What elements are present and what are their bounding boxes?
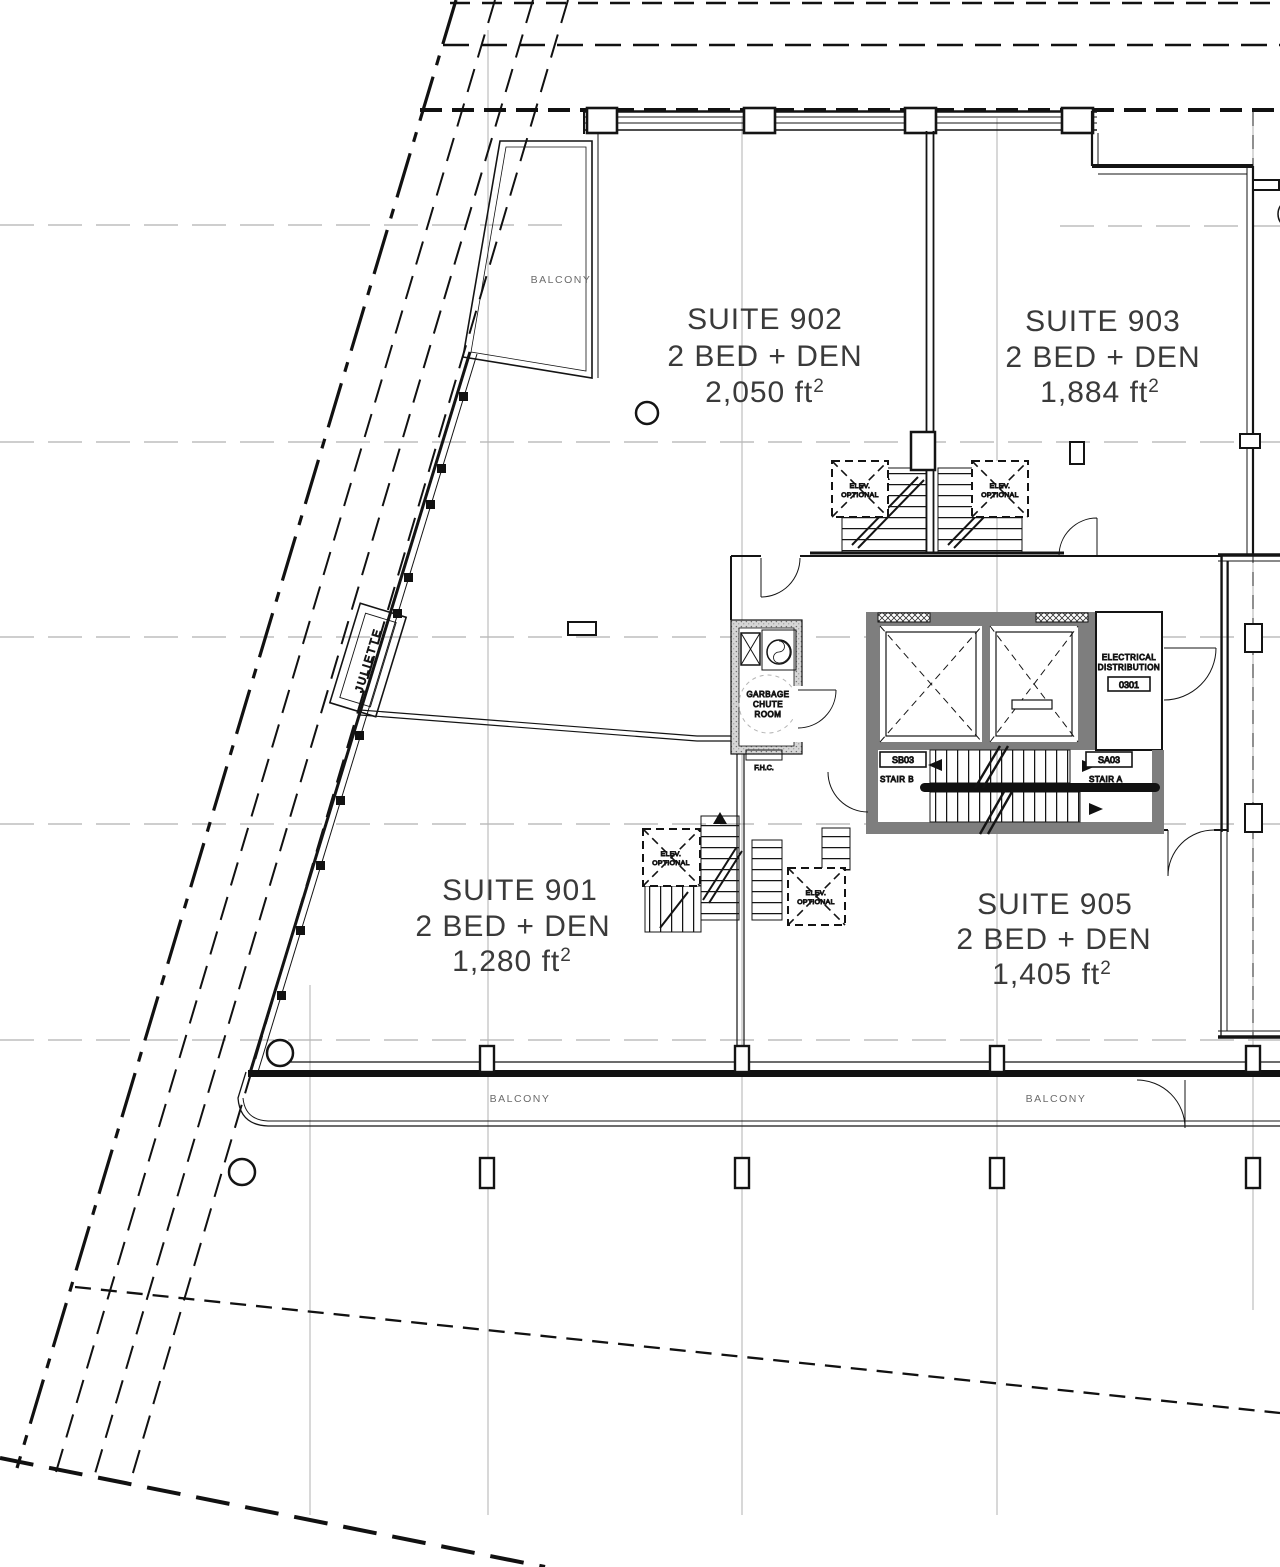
balcony-label-bottom-left: BALCONY — [490, 1093, 551, 1105]
elev-optional-label-3a: ELEV. — [661, 851, 682, 858]
suite-901-title: SUITE 901 — [442, 874, 598, 907]
balcony-post — [990, 1046, 1004, 1072]
suite-903-area: 1,884 ft2 — [1040, 376, 1160, 409]
suite-902-type: 2 BED + DEN — [667, 340, 862, 373]
suite-902-title: SUITE 902 — [687, 303, 843, 336]
elev-optional-4: ELEV. OPTIONAL — [788, 868, 845, 925]
suite-905-title: SUITE 905 — [977, 888, 1133, 921]
grid-column — [1245, 624, 1262, 652]
grid-column — [1245, 804, 1262, 832]
elev-optional-1: ELEV. OPTIONAL — [832, 461, 888, 517]
elevator-door-hatch — [1036, 613, 1088, 622]
suite-903-title: SUITE 903 — [1025, 305, 1181, 338]
suite-901-area: 1,280 ft2 — [452, 945, 572, 978]
suite-903-type: 2 BED + DEN — [1005, 341, 1200, 374]
stair-b-tag: SB03 — [892, 755, 914, 765]
elev-optional-label-2b: OPTIONAL — [981, 492, 1019, 499]
elev-optional-3: ELEV. OPTIONAL — [643, 829, 700, 886]
round-column — [229, 1159, 255, 1185]
balcony-post — [990, 1158, 1004, 1188]
round-column — [636, 402, 658, 424]
garbage-room-label-1: GARBAGE — [746, 690, 789, 699]
fire-hose-cabinet-label: F.H.C. — [754, 765, 774, 772]
balcony-label-top: BALCONY — [531, 274, 592, 286]
balcony-post — [735, 1158, 749, 1188]
electrical-label-2: DISTRIBUTION — [1098, 663, 1160, 672]
electrical-label-1: ELECTRICAL — [1102, 653, 1156, 662]
stair-a-tag: SA03 — [1098, 755, 1120, 765]
balcony-post — [1246, 1158, 1260, 1188]
elev-optional-label-4a: ELEV. — [806, 890, 827, 897]
stair-b-label: STAIR B — [880, 775, 914, 784]
electrical-tag: 0301 — [1119, 680, 1139, 690]
balcony-post — [735, 1046, 749, 1072]
balcony-post — [480, 1046, 494, 1072]
garbage-room-label-2: CHUTE — [753, 700, 783, 709]
elev-optional-label-2a: ELEV. — [990, 483, 1011, 490]
stair-handrail — [920, 783, 1160, 792]
suite-905-type: 2 BED + DEN — [956, 923, 1151, 956]
elev-optional-label-3b: OPTIONAL — [652, 860, 690, 867]
floor-plan-svg: JULIETTE — [0, 0, 1280, 1567]
elevator-door-hatch — [878, 613, 930, 622]
suite-902-area: 2,050 ft2 — [705, 376, 825, 409]
stair-a-label: STAIR A — [1089, 775, 1123, 784]
elev-optional-label-1b: OPTIONAL — [841, 492, 879, 499]
elev-optional-label-4b: OPTIONAL — [797, 899, 835, 906]
elevator-core — [866, 612, 1096, 750]
suite-905-area: 1,405 ft2 — [992, 958, 1112, 991]
balcony-label-bottom-right: BALCONY — [1026, 1093, 1087, 1105]
balcony-post — [1246, 1046, 1260, 1072]
elev-optional-label-1a: ELEV. — [850, 483, 871, 490]
elev-optional-2: ELEV. OPTIONAL — [972, 461, 1028, 517]
garbage-room-label-3: ROOM — [755, 710, 782, 719]
round-column — [267, 1040, 293, 1066]
floor-plan-canvas: JULIETTE — [0, 0, 1280, 1567]
balcony-post — [480, 1158, 494, 1188]
suite-901-type: 2 BED + DEN — [415, 910, 610, 943]
